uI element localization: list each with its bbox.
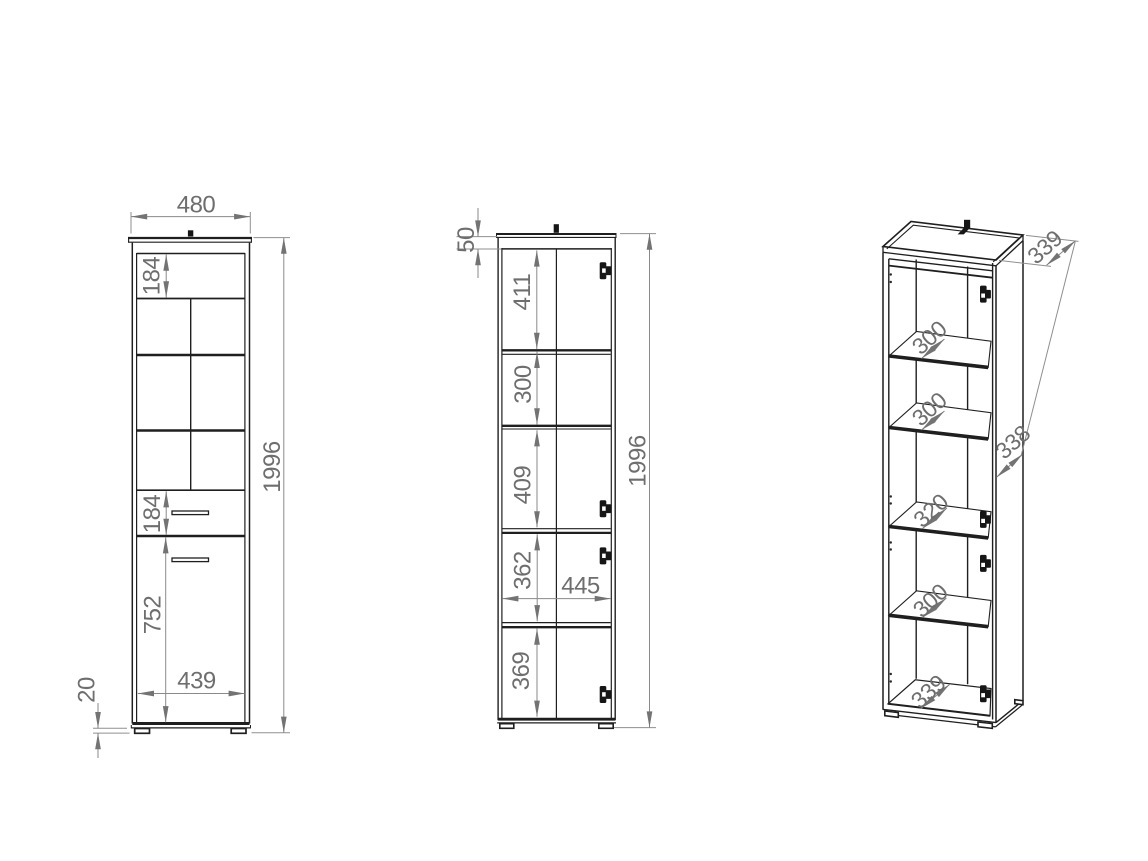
svg-text:445: 445 [561,573,600,600]
svg-text:411: 411 [509,273,536,310]
svg-text:1996: 1996 [259,441,286,493]
svg-text:439: 439 [177,668,216,695]
svg-text:480: 480 [177,192,216,219]
svg-text:362: 362 [510,551,537,590]
svg-text:1996: 1996 [625,435,652,487]
svg-text:300: 300 [510,365,537,404]
svg-text:369: 369 [508,652,535,691]
svg-text:184: 184 [139,257,166,296]
svg-text:339: 339 [1022,225,1067,269]
svg-text:752: 752 [140,596,167,635]
svg-text:409: 409 [510,466,537,505]
svg-text:184: 184 [139,495,166,534]
svg-text:20: 20 [74,677,101,703]
svg-text:50: 50 [453,227,480,253]
